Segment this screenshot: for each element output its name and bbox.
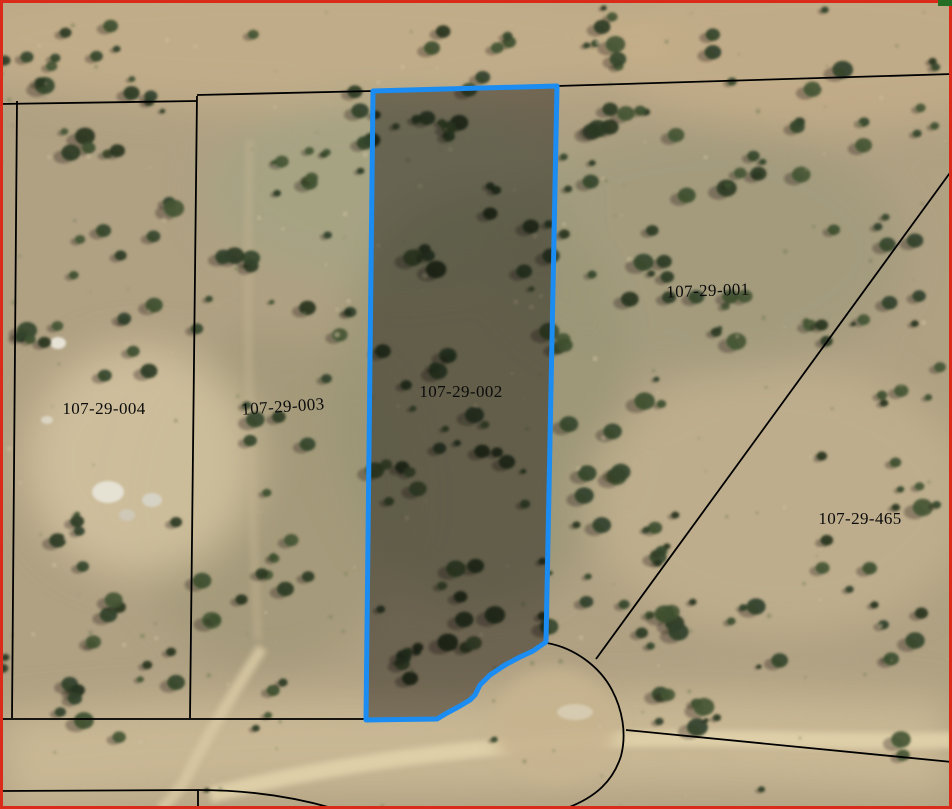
parcel-boundary-line: [190, 96, 197, 718]
parcel-boundary-line: [197, 91, 373, 95]
parcel-boundary-line: [626, 730, 952, 762]
map-canvas[interactable]: 107-29-004107-29-003107-29-002107-29-001…: [0, 0, 952, 809]
parcel-vector-layer: [0, 0, 952, 809]
map-corner-marker: [938, 0, 952, 6]
parcel-boundary-line: [0, 101, 197, 104]
parcel-boundary-line: [198, 790, 332, 808]
parcel-boundary-line: [12, 101, 17, 718]
parcel-boundary-line: [596, 170, 952, 659]
parcel-boundary-line: [557, 74, 952, 86]
parcel-boundary-line: [547, 643, 624, 808]
selected-parcel-highlight[interactable]: [366, 86, 557, 720]
